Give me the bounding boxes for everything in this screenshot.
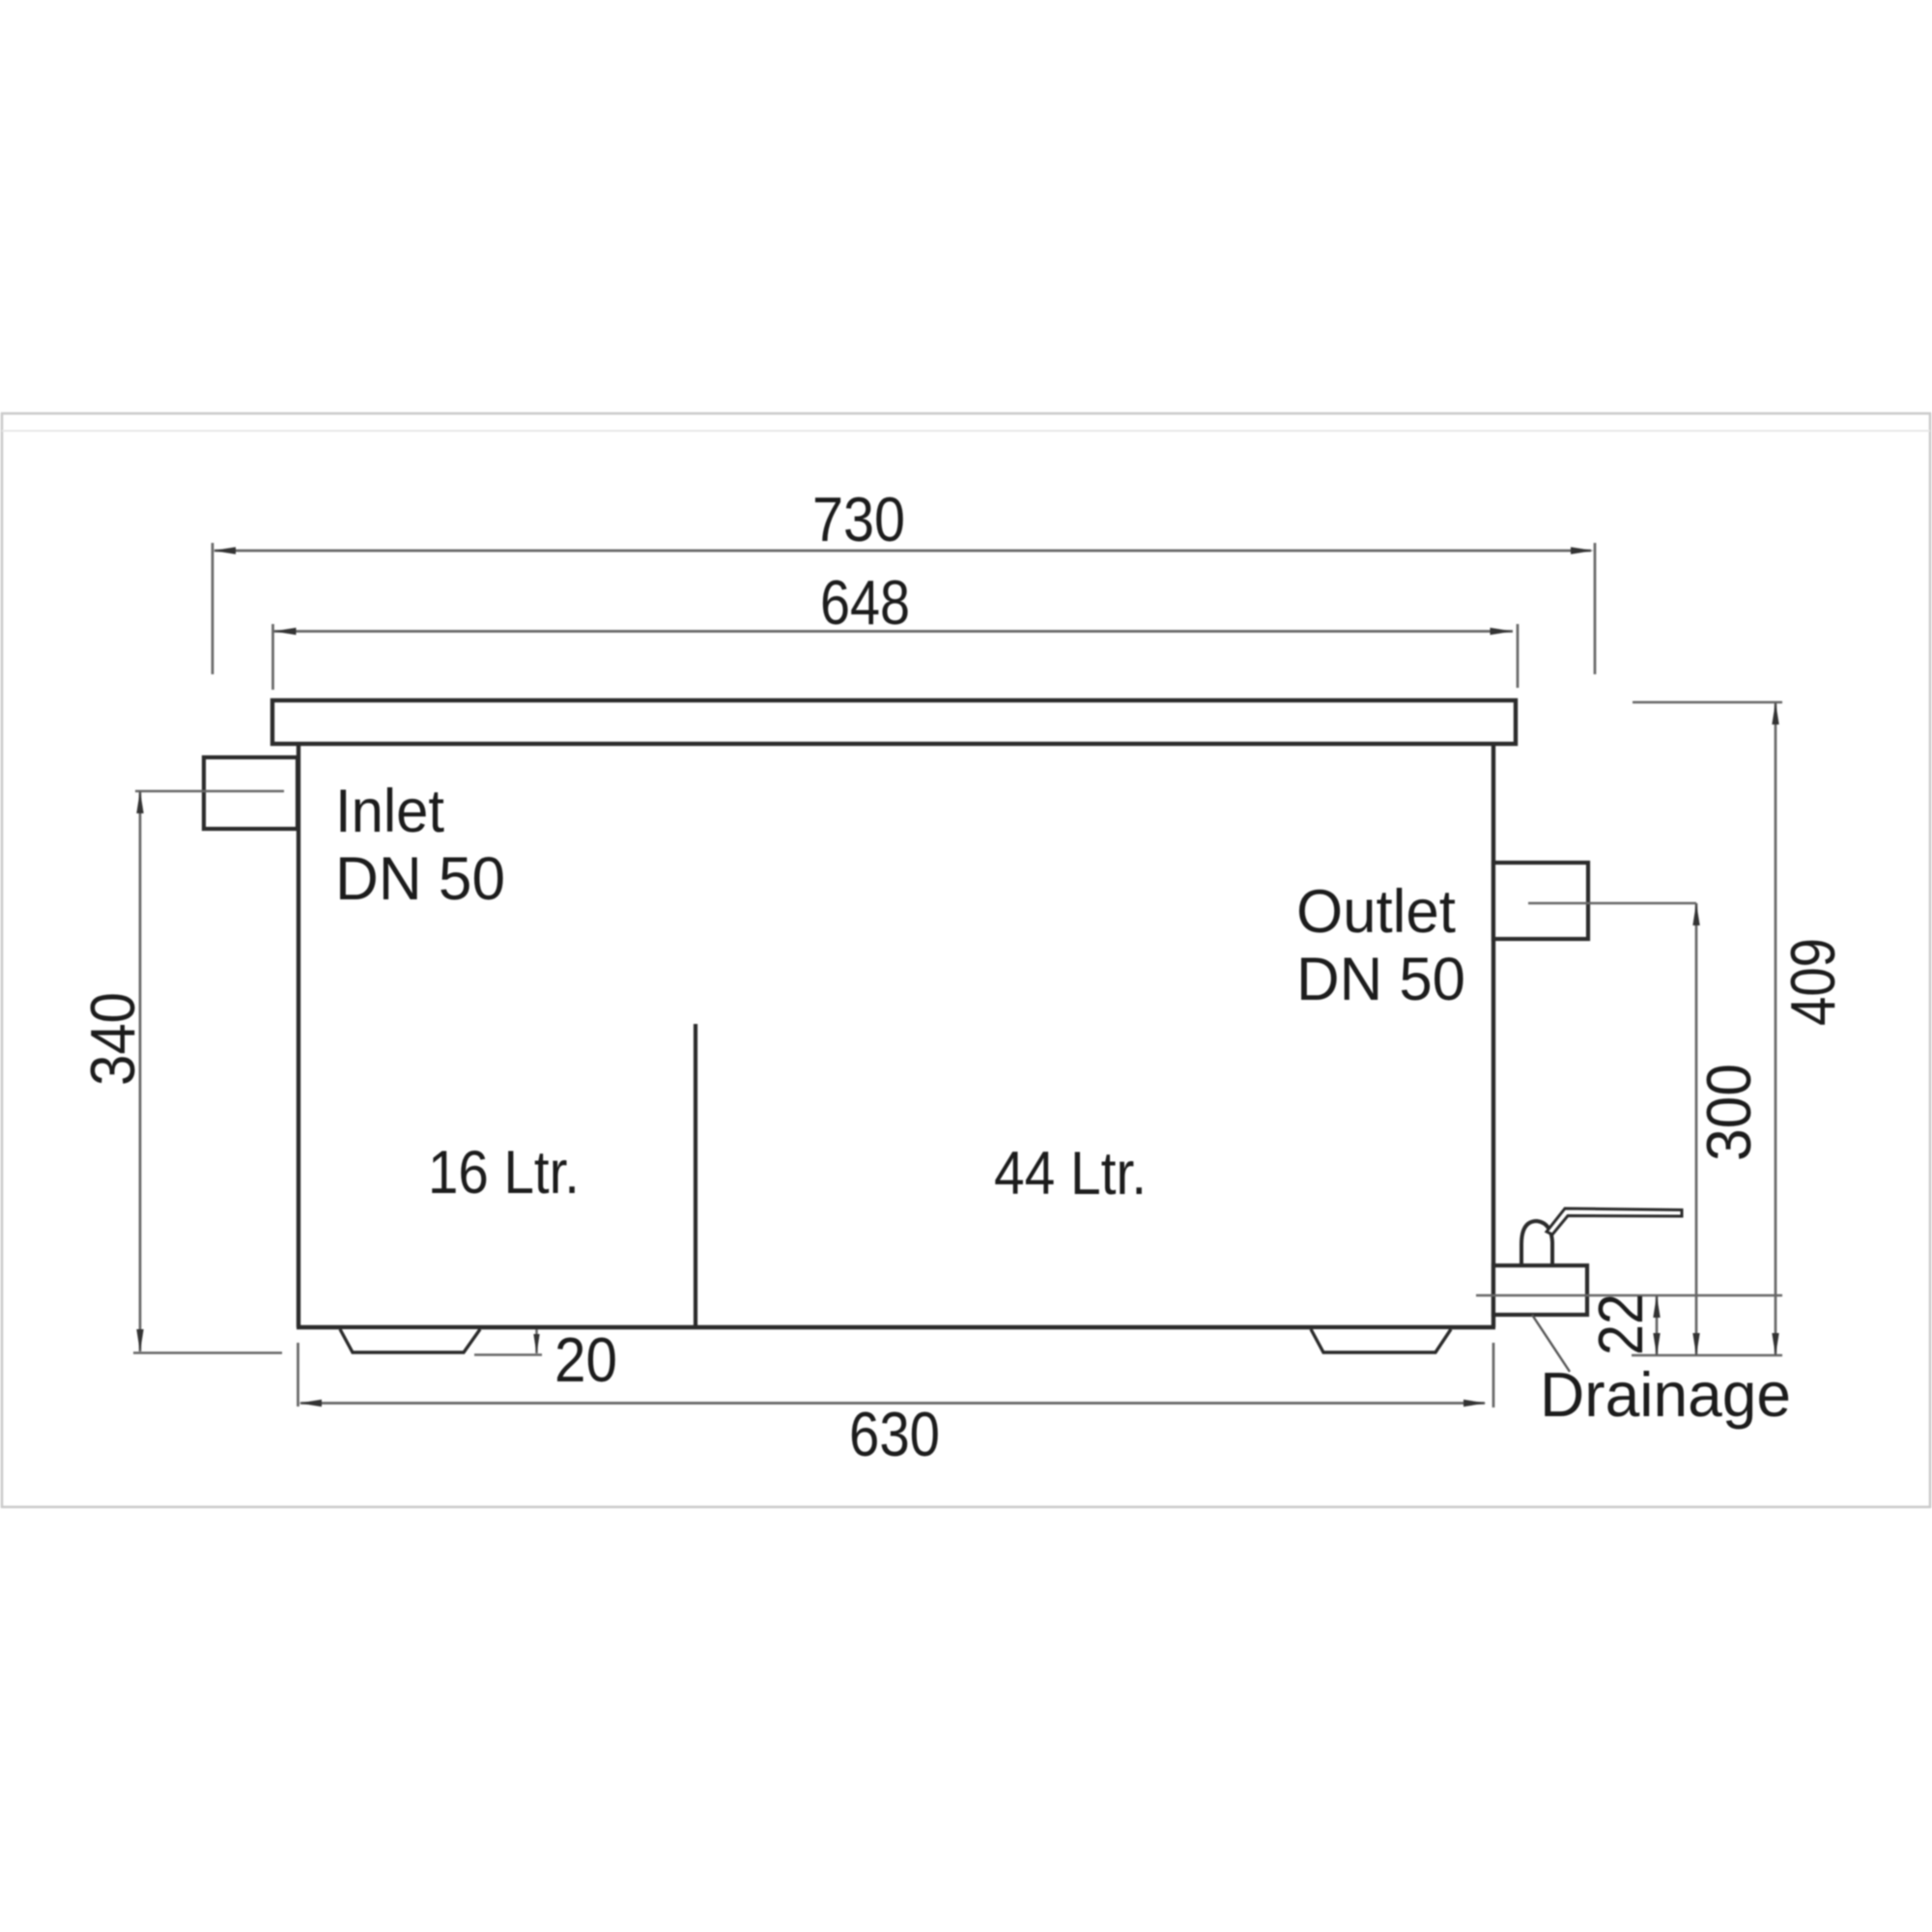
svg-text:340: 340 <box>78 992 148 1086</box>
svg-text:630: 630 <box>849 1400 940 1469</box>
svg-text:730: 730 <box>812 485 905 554</box>
svg-text:16 Ltr.: 16 Ltr. <box>428 1139 580 1207</box>
svg-text:Inlet: Inlet <box>335 778 444 845</box>
svg-text:44 Ltr.: 44 Ltr. <box>994 1140 1147 1207</box>
svg-text:300: 300 <box>1694 1064 1764 1161</box>
svg-text:20: 20 <box>554 1325 617 1395</box>
svg-text:Drainage: Drainage <box>1540 1360 1791 1430</box>
svg-text:DN 50: DN 50 <box>1296 946 1465 1013</box>
svg-text:Outlet: Outlet <box>1296 878 1456 946</box>
svg-text:22: 22 <box>1586 1293 1656 1355</box>
svg-text:648: 648 <box>820 568 910 638</box>
svg-text:DN 50: DN 50 <box>335 845 505 913</box>
svg-text:409: 409 <box>1778 938 1848 1026</box>
